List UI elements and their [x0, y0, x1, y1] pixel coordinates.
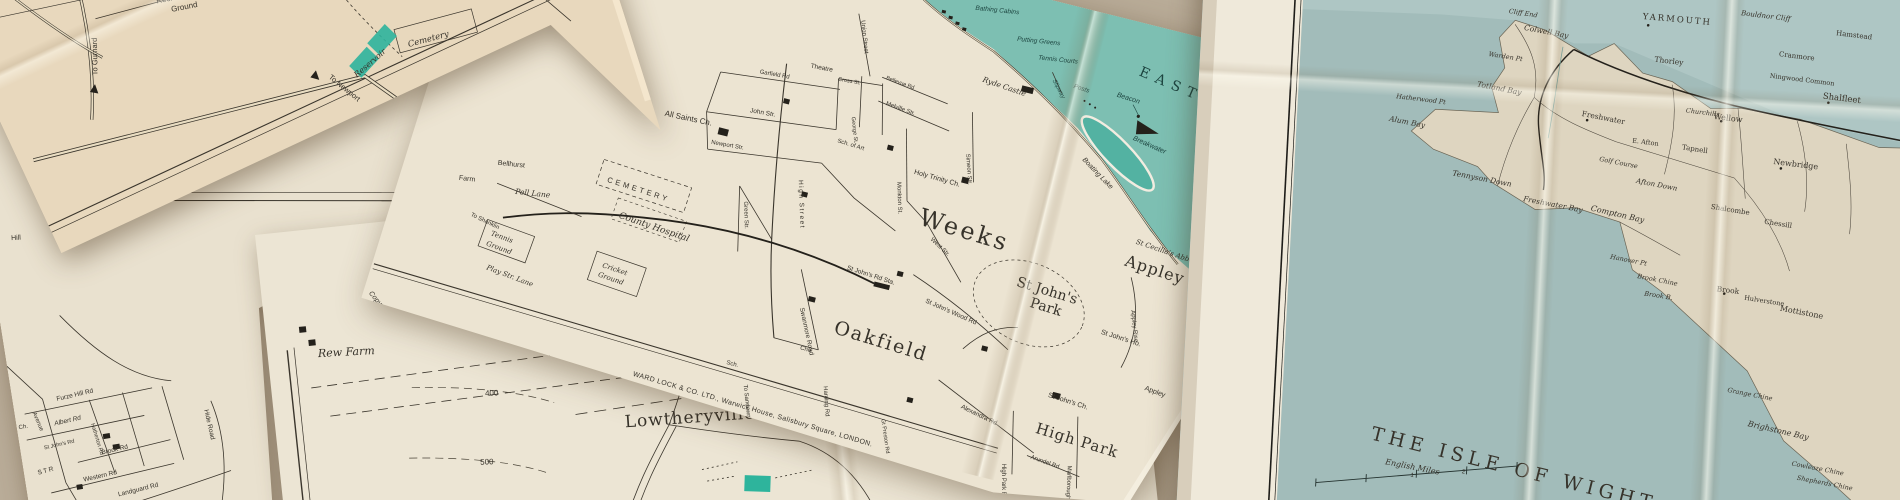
all-saints-ch-label: All Saints Ch. — [664, 109, 713, 128]
hatherton-rd-label: Hatherton Rd — [89, 423, 104, 456]
county-hospital-label: County Hospital — [617, 211, 690, 245]
school-label: Sch. — [726, 360, 739, 369]
to-shanklin-label: To Shanklin — [470, 212, 501, 231]
hide-road-label: Hide Road — [202, 409, 216, 441]
rew-farm-label: Rew Farm — [317, 344, 375, 360]
melville-str-label: Melville Str. — [885, 101, 916, 117]
contour-frame — [287, 348, 319, 500]
gt-preston-rd-label: Gt Preston Rd — [879, 419, 890, 454]
ryde-castle-label: Ryde Castle — [981, 75, 1028, 99]
ventnor-street-labels: Hill Furze Hill Rd Albert Rd Brook Rd We… — [0, 208, 223, 500]
cemetery-label: Cemetery — [407, 29, 450, 50]
theatre-label: Theatre — [810, 63, 834, 74]
monkton-st-label: Monkton St. — [895, 182, 902, 215]
sch-of-art-label: Sch. of Art — [837, 138, 866, 152]
appley-small-label: Appley — [1144, 385, 1167, 399]
george-st-label: George St. — [850, 117, 859, 145]
recreation-label-2: Ground — [170, 0, 198, 14]
photo-of-vintage-maps: Hill Furze Hill Rd Albert Rd Brook Rd We… — [0, 0, 1900, 500]
cemetery-plot — [394, 9, 477, 53]
green-str-label: Green Str. — [742, 201, 749, 229]
high-street-label: High Street — [797, 180, 806, 229]
west-str-label: West Str. — [929, 237, 951, 258]
st-johns-wood-rd-label: St John's Wood Rd — [924, 298, 978, 327]
avenue-label: Avenue — [31, 411, 45, 433]
landguard-rd-label: Landguard Rd — [117, 482, 159, 499]
railway-line — [503, 177, 878, 308]
st-johns-sta-label: St John's Rd Sta. — [846, 265, 896, 287]
harding-rd-label: Harding Rd — [822, 386, 830, 417]
contour-400-label: 400 — [485, 388, 499, 397]
john-str-label: John Str. — [749, 107, 776, 118]
union-street-label: Union Street — [859, 20, 868, 54]
hill-label: Hill — [11, 235, 22, 243]
oakfield-district-label: Oakfield — [831, 317, 930, 366]
isle-of-wight-map: YARMOUTH Freshwater Wellow Thorley Shalf… — [1173, 0, 1900, 500]
st-johns-rd-label: St John's Rd — [44, 439, 76, 452]
st-johns-ch-label: St John's Ch. — [1047, 392, 1089, 411]
farm-label: Farm — [459, 175, 476, 184]
str-label: STR — [37, 465, 56, 476]
to-gurnard-label: To Gurnard — [90, 38, 100, 76]
bellhurst-label: Bellhurst — [497, 160, 525, 170]
cross-st-label: Cross St. — [838, 77, 862, 87]
play-str-lane-label: Play Str. Lane — [484, 263, 534, 289]
highlighted-building-teal — [744, 475, 771, 492]
holy-trinity-label: Holy Trinity Ch. — [913, 169, 961, 189]
cemetery-label: CEMETERY — [606, 175, 671, 204]
isle-of-wight-map-sheet: YARMOUTH Freshwater Wellow Thorley Shalf… — [1173, 0, 1900, 500]
to-sandown-label: To Sandown — [742, 384, 751, 417]
albert-rd-label: Albert Rd — [53, 414, 82, 427]
pell-lane-label: Pell Lane — [514, 187, 551, 200]
road-arrow-icon — [309, 70, 320, 82]
church-label: Ch. — [18, 424, 28, 431]
contour-500-label: 500 — [480, 457, 494, 466]
bellevue-rd-label: Bellevue Rd — [885, 75, 915, 91]
weeks-district-label: Weeks — [916, 203, 1013, 257]
arundel-rd-label: Arundel Rd — [1030, 455, 1060, 471]
